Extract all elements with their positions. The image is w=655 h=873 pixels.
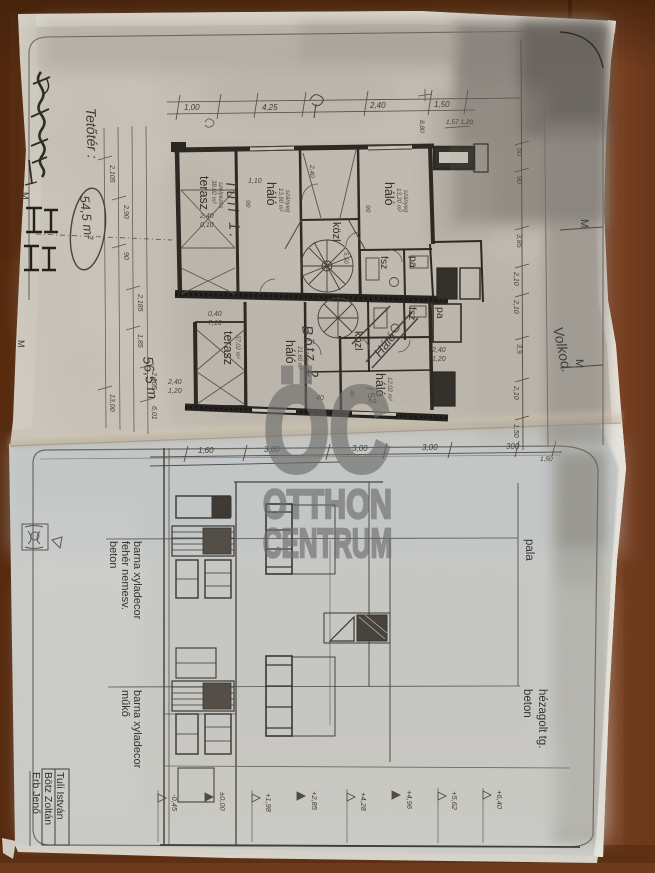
svg-text:fsz: fsz — [378, 256, 390, 269]
svg-text:+4,96: +4,96 — [405, 790, 414, 810]
svg-text:pala: pala — [523, 539, 535, 561]
svg-text:terasz: terasz — [221, 331, 235, 365]
svg-text:fehér nemesv.: fehér nemesv. — [119, 541, 131, 610]
svg-text:1,00: 1,00 — [184, 103, 200, 112]
svg-text:2,105: 2,105 — [108, 164, 115, 183]
svg-text:0,40: 0,40 — [208, 311, 222, 318]
svg-text:2,40: 2,40 — [369, 101, 386, 110]
svg-text:13,60 m²: 13,60 m² — [277, 188, 283, 213]
svg-text:Tuli István: Tuli István — [54, 772, 66, 820]
svg-text:közl: közl — [352, 331, 364, 351]
svg-text:1,50: 1,50 — [540, 456, 553, 463]
svg-text:1,57 1,20: 1,57 1,20 — [446, 119, 473, 126]
svg-text:3,85: 3,85 — [515, 234, 522, 248]
svg-text:ÖC: ÖC — [264, 362, 390, 496]
svg-text:+1,98: +1,98 — [264, 793, 273, 813]
svg-text:CENTRUM: CENTRUM — [263, 521, 392, 566]
svg-text:+2,85: +2,85 — [310, 791, 319, 811]
svg-text:3,00: 3,00 — [422, 443, 438, 452]
svg-text:2,185: 2,185 — [136, 293, 143, 312]
svg-text:szélyezés: szélyezés — [217, 182, 223, 208]
svg-text:pa: pa — [407, 256, 419, 268]
svg-text:2,10: 2,10 — [512, 271, 519, 286]
svg-text:5,50: 5,50 — [342, 252, 348, 264]
svg-text:90: 90 — [122, 252, 129, 260]
svg-text:1,50: 1,50 — [434, 100, 450, 109]
svg-text:1,20: 1,20 — [168, 388, 182, 395]
svg-text:4,25: 4,25 — [262, 103, 278, 112]
svg-text:-0,45: -0,45 — [170, 794, 179, 812]
svg-text:M: M — [20, 192, 30, 200]
svg-text:3,9: 3,9 — [515, 344, 522, 354]
svg-text:90: 90 — [515, 176, 522, 184]
svg-text:90: 90 — [364, 205, 371, 213]
svg-text:pa: pa — [434, 307, 446, 319]
svg-text:2,40: 2,40 — [431, 347, 446, 354]
svg-text:háló: háló — [382, 182, 396, 206]
svg-text:7,10: 7,10 — [208, 320, 222, 327]
svg-text:szányeg: szányeg — [402, 190, 408, 213]
svg-text:műkő: műkő — [119, 690, 131, 717]
svg-text:+4,28: +4,28 — [359, 792, 368, 812]
svg-text:hézagolt tg.: hézagolt tg. — [536, 689, 548, 748]
svg-text:Erb Jenő: Erb Jenő — [30, 772, 42, 814]
svg-text:barna xyladecor: barna xyladecor — [131, 541, 143, 620]
svg-text:2,10: 2,10 — [512, 385, 519, 400]
svg-text:±0,00: ±0,00 — [218, 792, 227, 812]
svg-text:1,10: 1,10 — [248, 178, 262, 185]
svg-text:2,90: 2,90 — [122, 204, 129, 219]
svg-text:37,02 m²: 37,02 m² — [234, 335, 240, 360]
svg-text:50: 50 — [515, 148, 522, 156]
svg-text:+6,40: +6,40 — [495, 790, 504, 810]
svg-text:Bötz Zoltán: Bötz Zoltán — [42, 772, 54, 825]
svg-text:fsz: fsz — [406, 307, 418, 320]
svg-text:M: M — [16, 340, 26, 348]
svg-text:háló: háló — [264, 182, 278, 206]
svg-text:8,80: 8,80 — [418, 120, 425, 133]
svg-text:terasz: terasz — [197, 176, 211, 210]
svg-text:300: 300 — [506, 442, 520, 451]
svg-text:1,20: 1,20 — [432, 356, 446, 363]
svg-text:közl: közl — [330, 222, 342, 242]
svg-text:beton: beton — [107, 541, 119, 569]
svg-text:OTTHON: OTTHON — [263, 481, 392, 527]
svg-text:M: M — [578, 219, 590, 228]
svg-text:90: 90 — [244, 200, 251, 208]
svg-text:13,20 m²: 13,20 m² — [395, 188, 401, 213]
svg-text:szányeg: szányeg — [284, 190, 290, 213]
svg-text:6,01: 6,01 — [150, 406, 157, 420]
svg-text:2,40: 2,40 — [167, 379, 182, 386]
svg-text:+5,62: +5,62 — [450, 791, 459, 811]
svg-text:háló: háló — [283, 340, 297, 364]
svg-text:2,40: 2,40 — [308, 164, 315, 178]
svg-text:beton: beton — [521, 689, 533, 718]
svg-text:1,85: 1,85 — [136, 334, 143, 348]
svg-text:Tetőtér :: Tetőtér : — [83, 108, 101, 159]
svg-text:1,60: 1,60 — [198, 446, 214, 455]
svg-text:38,02 m²: 38,02 m² — [210, 180, 216, 205]
svg-text:barna xyladecor: barna xyladecor — [131, 690, 143, 769]
svg-text:2,40: 2,40 — [199, 213, 214, 220]
svg-text:0,10: 0,10 — [200, 222, 214, 229]
svg-text:2,10: 2,10 — [512, 299, 519, 314]
svg-text:13,00: 13,00 — [108, 394, 115, 412]
svg-text:1,50: 1,50 — [512, 424, 519, 438]
